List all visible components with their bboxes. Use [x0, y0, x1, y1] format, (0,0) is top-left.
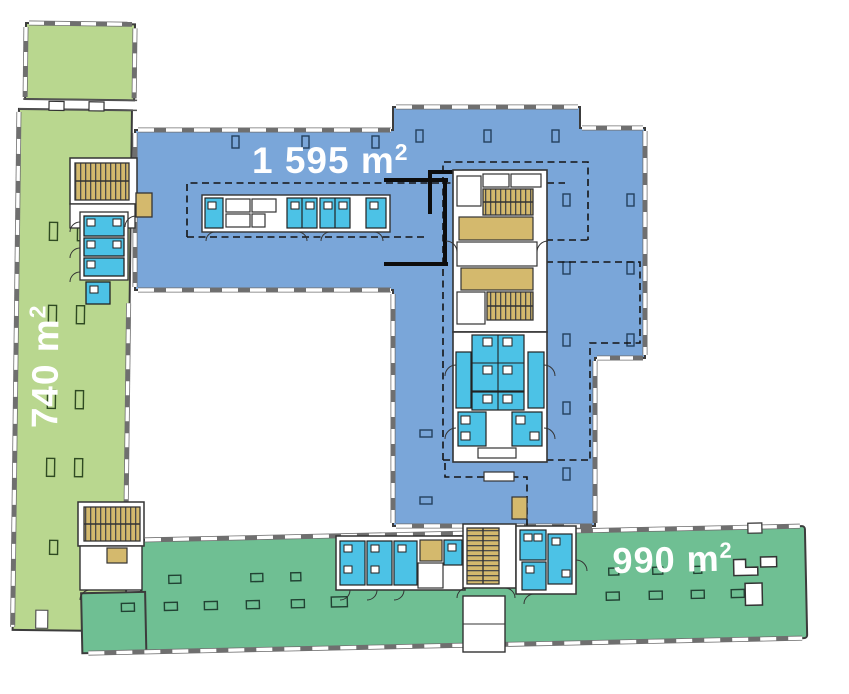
floor-plan-svg: 740 m2 990 m2 [0, 0, 849, 694]
core-corridor [457, 242, 537, 266]
entry-vestibule [136, 193, 152, 217]
bottom-wing-area-label: 990 m2 [612, 538, 733, 582]
core-shaft [512, 497, 527, 519]
junction-bottom-left [78, 502, 144, 590]
floor-plan: 740 m2 990 m2 [0, 0, 849, 694]
core-bench-upper [478, 448, 516, 458]
arm-room-band [202, 195, 390, 232]
bottom-wing-top-notch [748, 523, 762, 533]
main-area-label: 1 595 m2 [252, 139, 409, 181]
core-bench-lower [484, 472, 514, 481]
left-wing-top-room [25, 23, 135, 100]
core-lobby-lower [461, 268, 533, 290]
main-zone: 1 595 m2 [135, 107, 645, 526]
bottom-core-shaft [420, 540, 442, 561]
left-wing-area-label: 740 m2 [23, 304, 67, 428]
junction-shaft [107, 548, 127, 563]
core-lobby-upper [459, 217, 533, 240]
left-wing-bottom-notch [36, 610, 48, 628]
bottom-wing-left-extension [81, 592, 146, 653]
